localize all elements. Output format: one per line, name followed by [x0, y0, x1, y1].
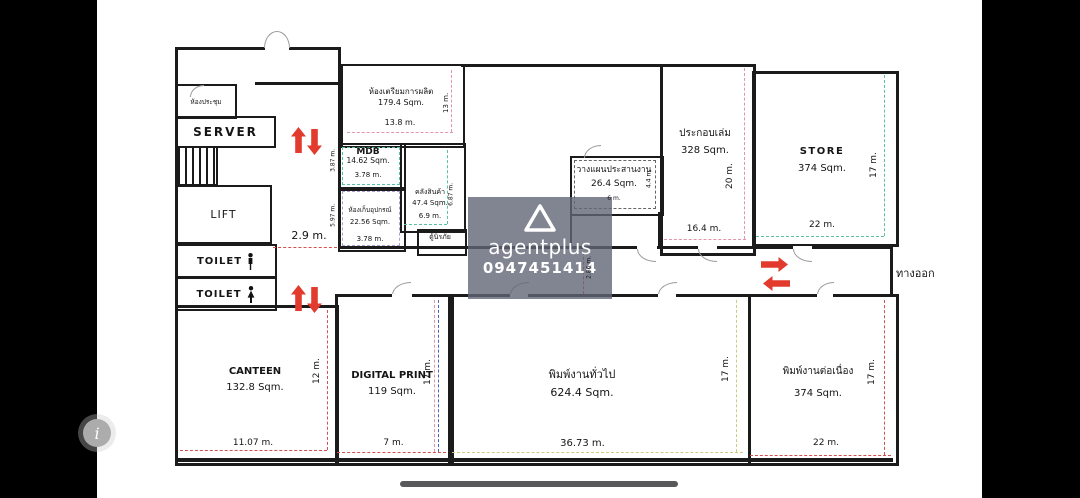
arrow-up-icon — [291, 285, 306, 311]
info-button[interactable]: i — [83, 419, 111, 447]
dim-corridor-width: 2.86 m. — [587, 245, 594, 289]
dim-line — [337, 452, 446, 453]
agentplus-logo-icon — [523, 203, 557, 233]
stairs — [176, 146, 218, 186]
wall-top-a — [175, 47, 265, 50]
letterbox-left — [0, 0, 97, 498]
arrow-right-icon — [761, 257, 788, 272]
info-button-label: i — [94, 424, 99, 443]
room-mdb-area: 14.62 Sqm. — [340, 157, 396, 165]
room-print-continuous-area: 374 Sqm. — [760, 388, 876, 399]
watermark-phone: 0947451414 — [483, 259, 597, 277]
room-print-general-area: 624.4 Sqm. — [518, 387, 646, 399]
door-arc — [793, 249, 812, 262]
room-toilet-female-label: TOILET — [196, 289, 241, 300]
room-toilet-male: TOILET — [175, 244, 277, 278]
door-gap — [392, 294, 412, 297]
room-print-general-label: พิมพ์งานทั่วไป — [518, 369, 646, 381]
room-lift-label: LIFT — [210, 208, 236, 221]
dim-prep-w: 13.8 m. — [365, 119, 435, 128]
room-canteen-label: CANTEEN — [205, 366, 305, 377]
room-equipment-label: ห้องเก็บอุปกรณ์ — [339, 207, 401, 214]
dim-warehouse-w: 6.9 m. — [407, 213, 453, 221]
dim-mdb-h: 3.87 m. — [331, 138, 338, 182]
dim-store-w: 22 m. — [782, 220, 862, 230]
watermark-brand: agentplus — [488, 235, 592, 259]
dim-print-continuous-w: 22 m. — [786, 438, 866, 448]
dim-line — [452, 452, 743, 453]
dim-mdb-w: 3.78 m. — [340, 172, 396, 180]
wall-top-b — [289, 47, 341, 50]
arrow-down-icon — [307, 129, 322, 155]
dim-canteen-w: 11.07 m. — [213, 438, 293, 448]
room-equipment-area: 22.56 Sqm. — [339, 219, 401, 227]
door-arc — [277, 31, 290, 48]
room-print-continuous-label: พิมพ์งานต่อเนื่อง — [758, 366, 878, 377]
wall-corridor-bottom — [335, 294, 893, 297]
arrow-down-icon — [307, 287, 322, 313]
dim-warehouse-h: 6.87 m. — [449, 172, 456, 216]
dim-digital-print-w: 7 m. — [366, 438, 421, 448]
dim-line — [736, 300, 737, 452]
dim-store-h: 17 m. — [869, 143, 879, 187]
dim-assembly-w: 16.4 m. — [668, 224, 740, 234]
door-arc — [698, 249, 717, 262]
dim-line — [884, 300, 885, 455]
home-indicator[interactable] — [400, 481, 678, 487]
room-safe-label: ตู้นิรภัย — [418, 234, 462, 242]
dim-line — [347, 132, 453, 133]
dim-line — [884, 75, 885, 236]
door-gap — [658, 294, 676, 297]
dim-print-general-w: 36.73 m. — [540, 438, 625, 449]
door-gap — [637, 246, 657, 249]
dim-line — [756, 236, 884, 237]
dim-canteen-h: 12 m. — [312, 349, 322, 393]
dim-print-continuous-h: 17 m. — [867, 350, 877, 394]
wall-vestibule — [255, 82, 341, 85]
door-gap — [793, 246, 812, 249]
room-lift: LIFT — [175, 185, 272, 244]
dim-line — [327, 310, 328, 450]
female-icon — [246, 286, 256, 303]
dim-assembly-h: 20 m. — [725, 154, 735, 198]
male-icon — [246, 253, 255, 270]
arrow-left-icon — [763, 276, 790, 291]
dim-planning-h: 4.4 m. — [647, 156, 654, 200]
door-arc — [584, 145, 601, 158]
dim-digital-print-h: 17 m. — [423, 350, 433, 394]
dim-line — [180, 450, 327, 451]
dim-line — [404, 224, 447, 225]
door-arc — [264, 31, 277, 48]
room-planning-label: วางแผนประสานงาน — [572, 166, 656, 176]
dim-line — [750, 455, 891, 456]
door-arc — [637, 249, 656, 262]
room-assembly-label: ประกอบเล่ม — [662, 128, 748, 139]
wall-hall-top — [461, 64, 662, 67]
wall-outer-left — [175, 47, 178, 460]
dim-hall-width: 2.9 m. — [280, 230, 338, 242]
door-gap — [698, 246, 717, 249]
room-planning-area: 26.4 Sqm. — [572, 179, 656, 189]
dim-prep-h: 13 m. — [443, 81, 451, 125]
room-store-area: 374 Sqm. — [772, 163, 872, 174]
room-meeting: ห้องประชุม — [175, 84, 237, 119]
room-server: SERVER — [175, 116, 276, 148]
room-meeting-label: ห้องประชุม — [190, 97, 221, 107]
room-canteen-area: 132.8 Sqm. — [205, 382, 305, 393]
wall-corridor-end — [890, 246, 893, 297]
room-assembly-area: 328 Sqm. — [662, 145, 748, 156]
letterbox-right — [982, 0, 1080, 498]
room-toilet-male-label: TOILET — [197, 256, 242, 267]
wall-planning-right — [658, 212, 660, 248]
dim-planning-w: 6 m. — [598, 196, 630, 203]
screenshot-root: ห้องประชุม SERVER LIFT TOILET TOILET — [0, 0, 1080, 498]
door-gap — [817, 294, 833, 297]
dim-equipment-w: 3.78 m. — [340, 236, 400, 244]
exit-label: ทางออก — [896, 268, 966, 280]
dim-line — [273, 247, 337, 248]
dim-line — [664, 239, 746, 240]
arrow-up-icon — [291, 127, 306, 153]
room-store-label: STORE — [772, 146, 872, 157]
wall-outer-bottom — [175, 458, 893, 462]
room-server-label: SERVER — [193, 125, 258, 139]
dim-print-general-h: 17 m. — [721, 347, 731, 391]
